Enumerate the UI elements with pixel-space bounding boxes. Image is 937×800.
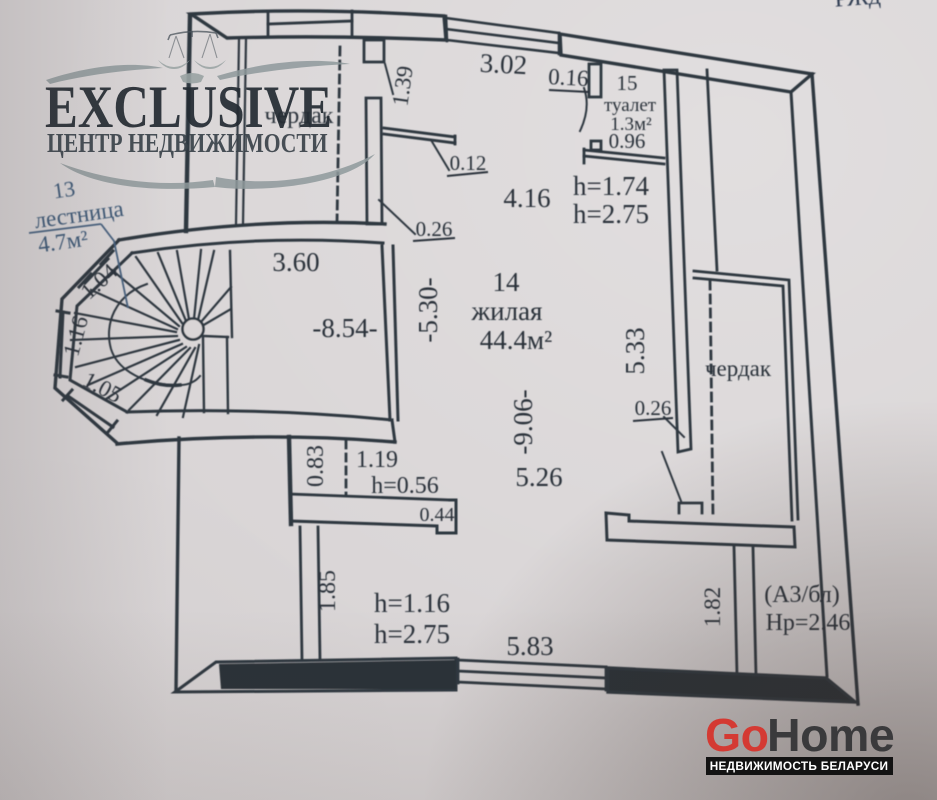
svg-text:НЕДВИЖИМОСТЬ БЕЛАРУСИ: НЕДВИЖИМОСТЬ БЕЛАРУСИ <box>710 759 889 773</box>
svg-text:Home: Home <box>767 709 894 761</box>
svg-text:Go: Go <box>705 709 769 761</box>
